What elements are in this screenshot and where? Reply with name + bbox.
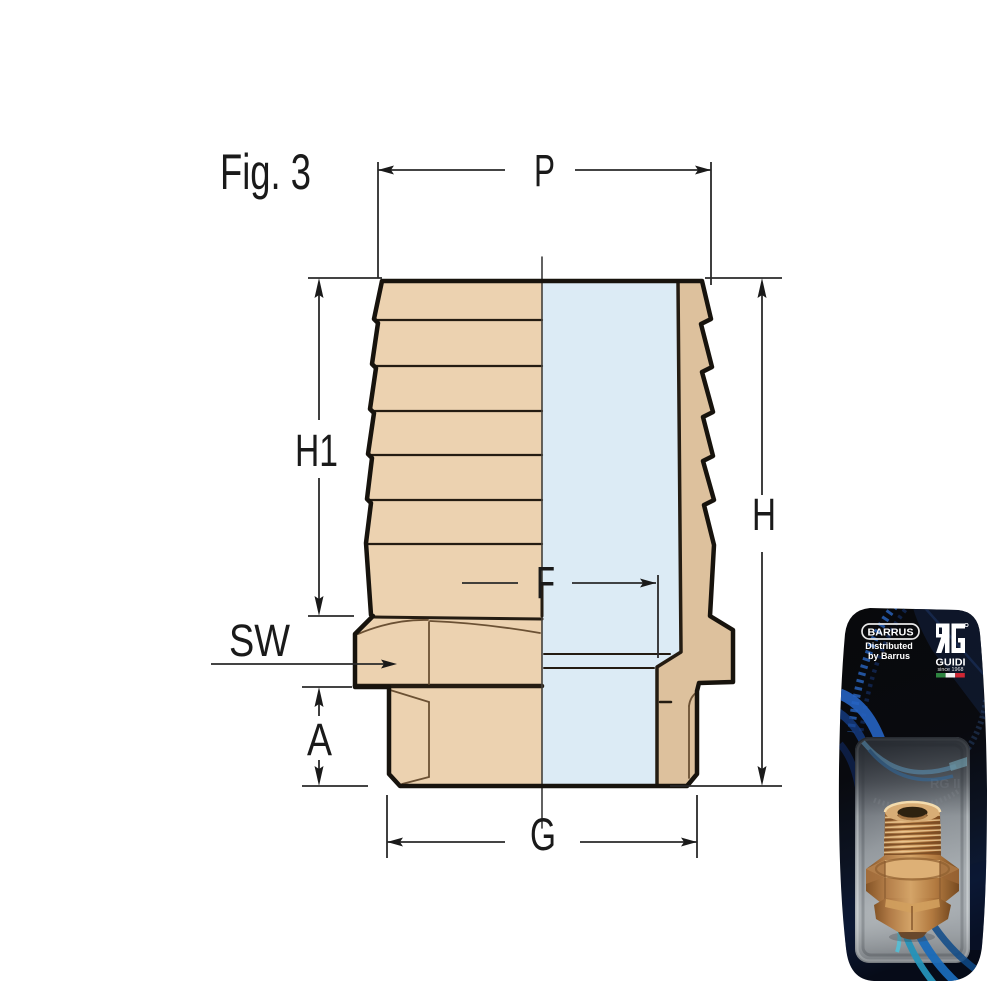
svg-text:Distributed: Distributed [865, 641, 913, 651]
svg-text:BARRUS: BARRUS [868, 628, 914, 639]
svg-text:H1: H1 [295, 425, 338, 476]
svg-text:A: A [307, 714, 332, 765]
svg-text:Fig. 3: Fig. 3 [220, 144, 311, 200]
svg-text:since 1968: since 1968 [938, 667, 964, 673]
svg-text:F: F [536, 557, 555, 608]
svg-text:H: H [752, 489, 776, 540]
svg-text:SW: SW [229, 615, 290, 666]
svg-text:P: P [534, 145, 555, 196]
svg-text:G: G [530, 809, 556, 860]
svg-text:by Barrus: by Barrus [868, 651, 910, 661]
